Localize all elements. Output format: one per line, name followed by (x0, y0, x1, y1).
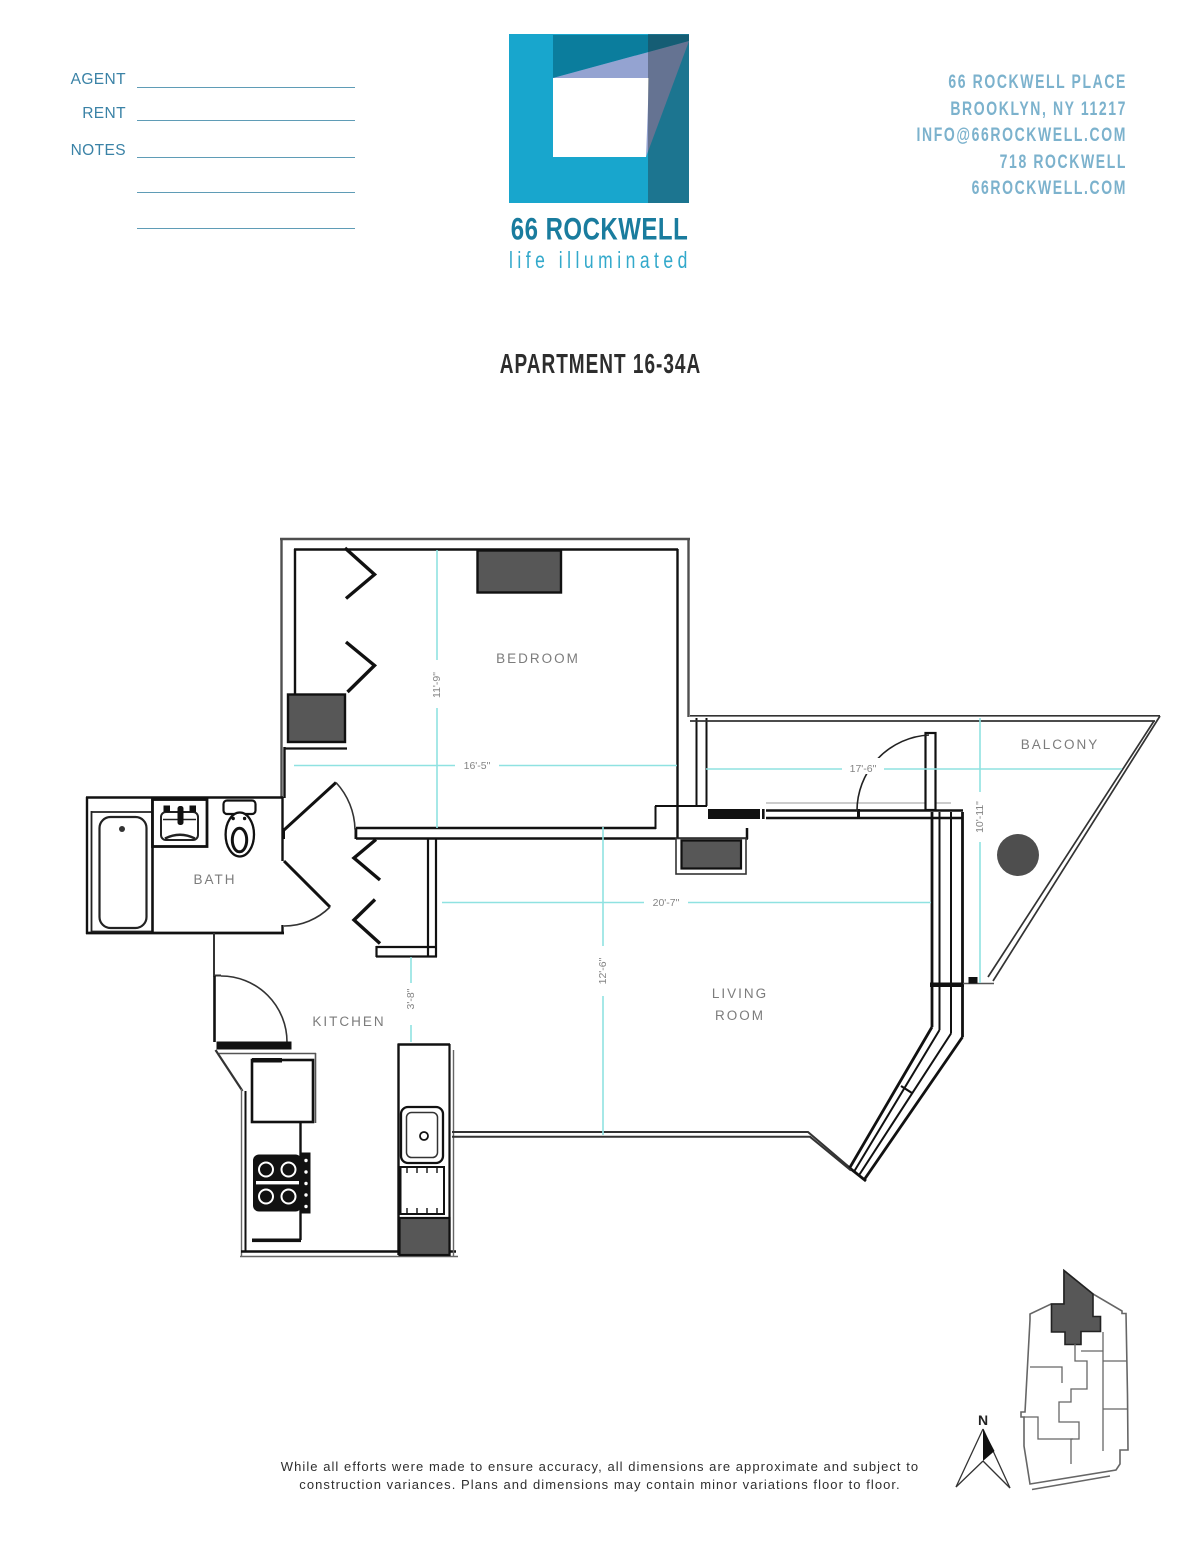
svg-text:ROOM: ROOM (715, 1008, 765, 1023)
svg-text:BALCONY: BALCONY (1021, 737, 1100, 752)
svg-text:12'-6": 12'-6" (597, 957, 609, 984)
svg-text:BEDROOM: BEDROOM (496, 651, 580, 666)
svg-text:3'-8": 3'-8" (405, 988, 417, 1009)
svg-text:N: N (978, 1412, 988, 1428)
svg-text:16'-5": 16'-5" (464, 760, 491, 772)
svg-text:20'-7": 20'-7" (653, 897, 680, 909)
svg-text:17'-6": 17'-6" (850, 763, 877, 775)
svg-text:KITCHEN: KITCHEN (312, 1014, 385, 1029)
svg-text:LIVING: LIVING (712, 986, 768, 1001)
svg-text:10'-11": 10'-11" (974, 801, 986, 833)
svg-text:11'-9": 11'-9" (431, 672, 443, 698)
svg-text:BATH: BATH (193, 872, 236, 887)
